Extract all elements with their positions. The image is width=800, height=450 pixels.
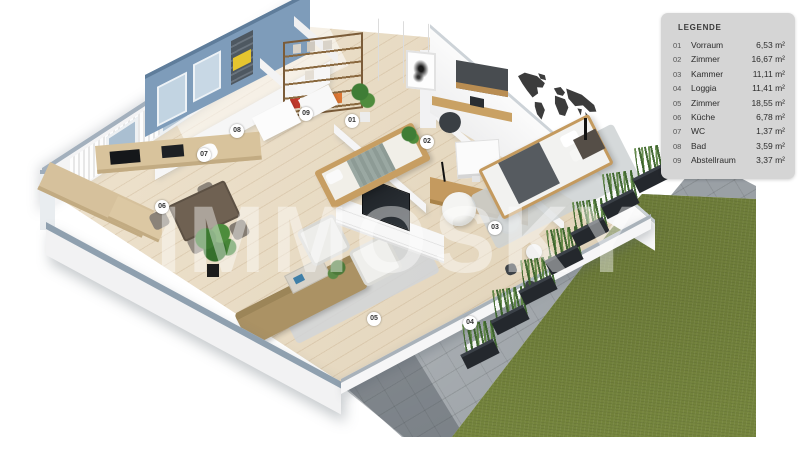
potted-plant <box>192 224 238 266</box>
legend-row-number: 04 <box>673 84 691 93</box>
room-marker-03: 03 <box>488 221 502 235</box>
legend-row-area: 1,37 m² <box>756 126 785 136</box>
legend-row-name: Vorraum <box>691 40 756 50</box>
legend-row-number: 09 <box>673 156 691 165</box>
legend-panel: LEGENDE 01 Vorraum 6,53 m² 02 Zimmer 16,… <box>661 13 795 179</box>
legend-row-name: Loggia <box>691 83 752 93</box>
legend-row-number: 08 <box>673 142 691 151</box>
legend-row: 09 Abstellraum 3,37 m² <box>673 155 785 169</box>
floorplan-render: IMMOSKY 010203040506070809 LEGENDE 01 Vo… <box>0 0 800 450</box>
legend-row: 07 WC 1,37 m² <box>673 126 785 140</box>
bonsai-plant <box>326 258 350 282</box>
legend-row-name: Abstellraum <box>691 155 756 165</box>
wall-art-frame <box>406 50 436 91</box>
monitor-stand <box>472 176 480 182</box>
room-marker-02: 02 <box>420 135 434 149</box>
room-marker-06: 06 <box>155 200 169 214</box>
storage-jar <box>305 70 314 80</box>
legend-row-number: 03 <box>673 70 691 79</box>
legend-row-name: Zimmer <box>691 98 751 108</box>
legend-row-number: 01 <box>673 41 691 50</box>
room-marker-09: 09 <box>299 107 313 121</box>
hall-plant <box>348 80 378 114</box>
legend-row: 08 Bad 3,59 m² <box>673 141 785 155</box>
storage-jar <box>293 44 301 54</box>
legend-row-name: Kammer <box>691 69 753 79</box>
legend-row-number: 07 <box>673 127 691 136</box>
legend-row-name: WC <box>691 126 756 136</box>
plant-pot <box>360 112 370 122</box>
window <box>193 50 221 102</box>
room-marker-05: 05 <box>367 312 381 326</box>
legend-row-number: 05 <box>673 99 691 108</box>
legend-row-area: 3,59 m² <box>756 141 785 151</box>
legend-title: LEGENDE <box>678 23 785 32</box>
cooktop <box>110 149 141 165</box>
office-chair <box>438 112 462 136</box>
legend-row-area: 11,11 m² <box>753 69 785 79</box>
legend-row-number: 02 <box>673 55 691 64</box>
legend-row: 01 Vorraum 6,53 m² <box>673 40 785 54</box>
legend-row-number: 06 <box>673 113 691 122</box>
legend-row-name: Zimmer <box>691 54 751 64</box>
room-marker-07: 07 <box>197 148 211 162</box>
legend-row: 06 Küche 6,78 m² <box>673 112 785 126</box>
legend-row-area: 16,67 m² <box>751 54 785 64</box>
kitchen-sink <box>161 144 184 158</box>
room-marker-08: 08 <box>230 124 244 138</box>
legend-row: 03 Kammer 11,11 m² <box>673 69 785 83</box>
legend-row-name: Küche <box>691 112 756 122</box>
plant-pot <box>207 264 219 277</box>
magazine <box>293 274 305 285</box>
legend-row-area: 11,41 m² <box>752 83 785 93</box>
legend-row-area: 6,53 m² <box>756 40 785 50</box>
legend-row-area: 6,78 m² <box>756 112 785 122</box>
legend-row: 04 Loggia 11,41 m² <box>673 83 785 97</box>
legend-row: 02 Zimmer 16,67 m² <box>673 54 785 68</box>
legend-row-area: 3,37 m² <box>756 155 785 165</box>
legend-row-name: Bad <box>691 141 756 151</box>
legend-row-area: 18,55 m² <box>751 98 785 108</box>
storage-jar <box>307 41 315 52</box>
legend-rows: 01 Vorraum 6,53 m² 02 Zimmer 16,67 m² 03… <box>673 40 785 170</box>
small-plant <box>398 124 420 146</box>
room-marker-01: 01 <box>345 114 359 128</box>
storage-jar <box>323 40 332 50</box>
table-lamp <box>584 118 587 140</box>
legend-row: 05 Zimmer 18,55 m² <box>673 98 785 112</box>
room-marker-04: 04 <box>463 316 477 330</box>
